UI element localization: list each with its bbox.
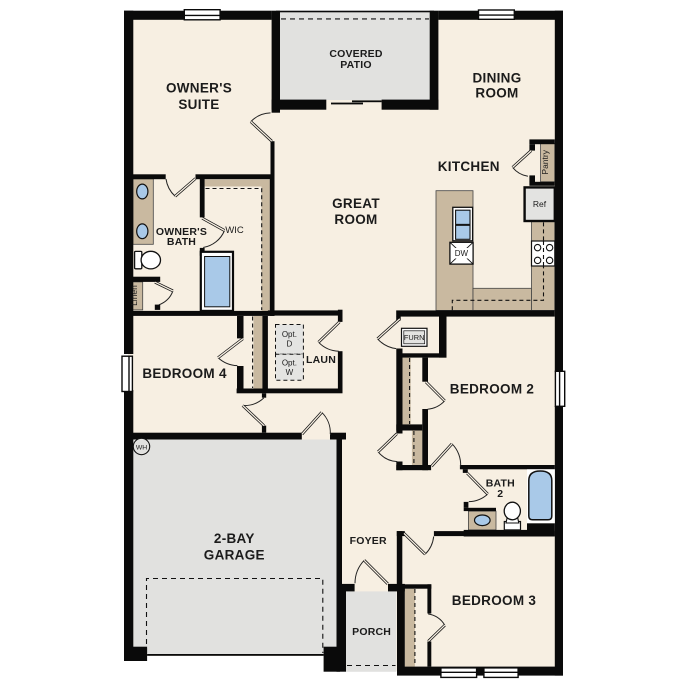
svg-text:Ref: Ref xyxy=(533,199,547,209)
svg-text:BEDROOM 3: BEDROOM 3 xyxy=(452,593,537,608)
svg-text:BATH: BATH xyxy=(167,236,196,248)
svg-text:PORCH: PORCH xyxy=(352,626,391,638)
svg-text:D: D xyxy=(287,340,293,349)
svg-text:FOYER: FOYER xyxy=(350,535,387,547)
svg-text:2-BAY: 2-BAY xyxy=(214,531,255,546)
svg-text:Linen: Linen xyxy=(129,285,139,306)
svg-text:Pantry: Pantry xyxy=(540,149,550,174)
svg-text:BEDROOM 2: BEDROOM 2 xyxy=(450,382,534,397)
svg-text:KITCHEN: KITCHEN xyxy=(438,159,500,174)
svg-text:ROOM: ROOM xyxy=(475,86,518,101)
svg-text:DW: DW xyxy=(455,249,469,258)
svg-text:Opt.: Opt. xyxy=(282,330,297,339)
svg-text:BEDROOM 4: BEDROOM 4 xyxy=(142,366,227,381)
svg-text:DINING: DINING xyxy=(472,71,521,86)
svg-text:FURN: FURN xyxy=(404,333,425,342)
svg-text:W: W xyxy=(286,368,294,377)
svg-text:LAUN: LAUN xyxy=(306,354,336,366)
svg-text:WH: WH xyxy=(136,444,147,451)
svg-text:WIC: WIC xyxy=(225,225,244,236)
svg-text:GARAGE: GARAGE xyxy=(204,548,265,563)
svg-text:GREAT: GREAT xyxy=(332,196,380,211)
svg-text:2: 2 xyxy=(497,488,503,500)
svg-text:ROOM: ROOM xyxy=(334,212,377,227)
svg-text:Opt.: Opt. xyxy=(282,359,297,368)
svg-text:OWNER'S: OWNER'S xyxy=(166,81,232,96)
svg-text:PATIO: PATIO xyxy=(340,59,372,71)
svg-text:SUITE: SUITE xyxy=(178,97,219,112)
